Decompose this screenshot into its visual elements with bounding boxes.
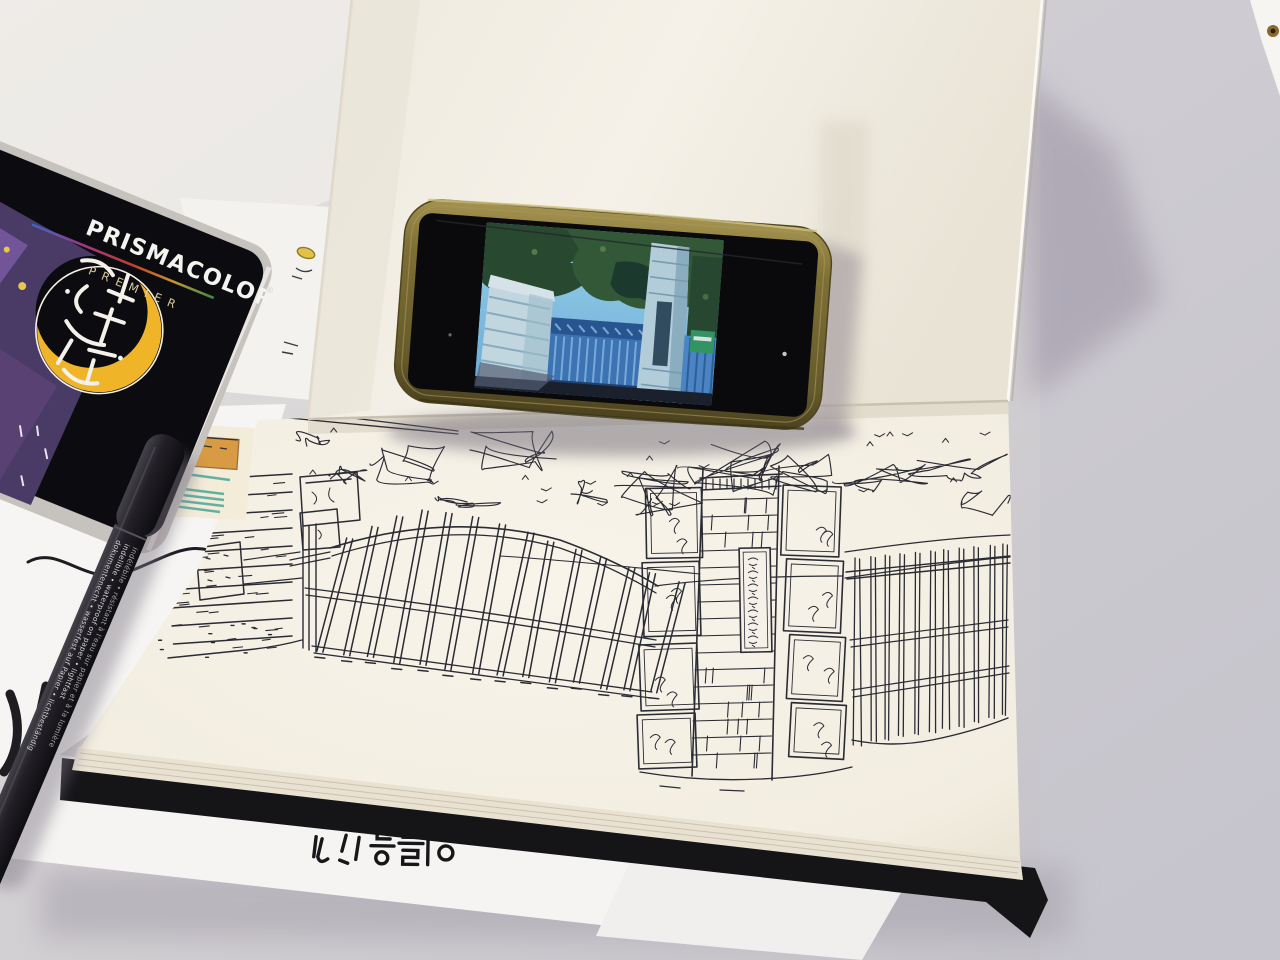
- photo-scene: PRISMACOLOR ® PREMIER: [0, 0, 1280, 960]
- phone: [392, 196, 834, 433]
- pillar-sign: [739, 548, 772, 653]
